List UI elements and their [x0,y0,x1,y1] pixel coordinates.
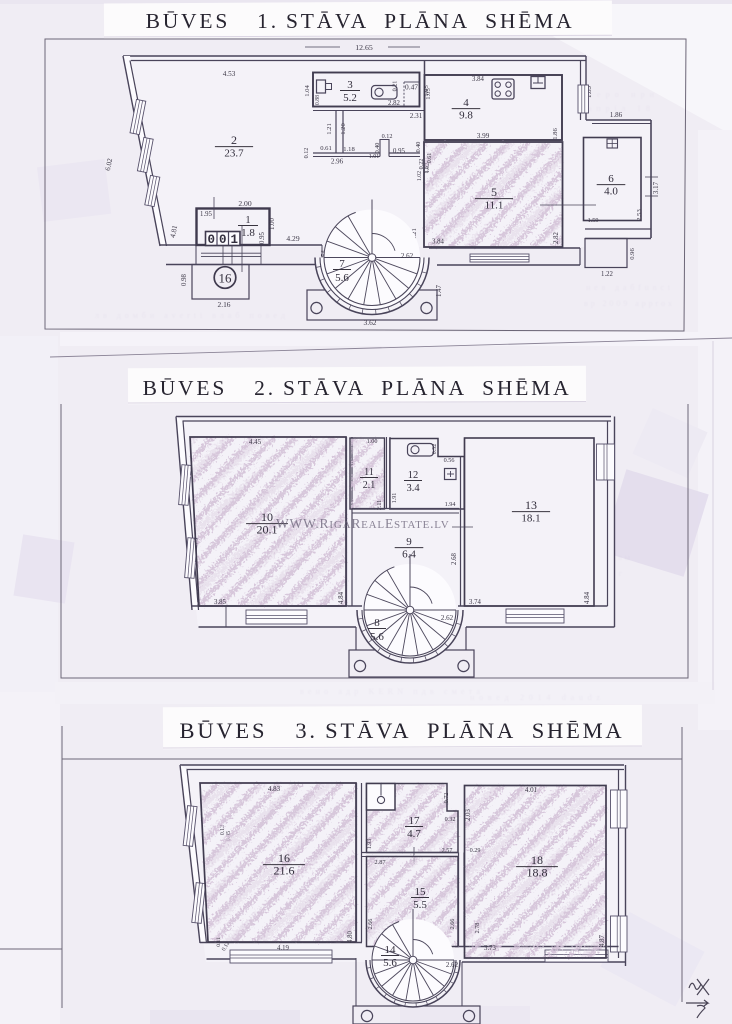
svg-text:1.20: 1.20 [340,123,347,135]
svg-text:5.5: 5.5 [413,899,427,911]
svg-text:14: 14 [385,944,397,956]
svg-text:4.84: 4.84 [337,591,345,604]
svg-text:2.62: 2.62 [446,961,459,969]
svg-text:5.6: 5.6 [335,272,349,284]
svg-text:1.01: 1.01 [369,154,380,160]
svg-text:3.74: 3.74 [469,599,481,606]
svg-text:0.11: 0.11 [216,937,222,947]
svg-text:2.66: 2.66 [367,919,374,930]
svg-text:2.31: 2.31 [410,112,423,120]
svg-text:2.53: 2.53 [636,209,643,221]
svg-text:0.40: 0.40 [415,142,422,153]
svg-text:0.61: 0.61 [427,153,433,164]
svg-text:4: 4 [463,97,469,109]
svg-text:2.82: 2.82 [553,231,560,243]
svg-text:0: 0 [208,233,216,247]
svg-text:17: 17 [409,815,421,827]
svg-text:1.00: 1.00 [367,438,378,445]
svg-text:1.59: 1.59 [588,217,599,224]
svg-text:0.96: 0.96 [629,248,636,260]
svg-text:0.95: 0.95 [393,148,405,155]
svg-text:1.86: 1.86 [552,128,559,140]
svg-text:1.05: 1.05 [423,85,430,97]
svg-text:1.8: 1.8 [241,227,255,239]
svg-text:2.87: 2.87 [374,859,386,866]
svg-text:4.29: 4.29 [286,234,299,243]
svg-text:2.62: 2.62 [441,614,454,622]
svg-text:13: 13 [525,498,537,512]
svg-text:0.88: 0.88 [315,95,321,105]
svg-text:4.53: 4.53 [223,70,236,78]
svg-text:4.19: 4.19 [277,945,289,952]
svg-text:12: 12 [408,470,419,481]
svg-text:0.72: 0.72 [443,793,450,804]
svg-text:0.12: 0.12 [303,148,310,159]
svg-text:6: 6 [608,173,614,185]
svg-text:7: 7 [339,258,345,270]
svg-text:1.00: 1.00 [269,217,276,229]
svg-text:2.00: 2.00 [238,199,251,208]
svg-text:4.45: 4.45 [249,438,262,446]
svg-text:4.83: 4.83 [268,785,281,793]
svg-text:1.93: 1.93 [367,839,373,850]
svg-text:BŪVES 3. STĀVA PLĀNA SHĒMA: BŪVES 3. STĀVA PLĀNA SHĒMA [180,718,625,743]
svg-text:23.7: 23.7 [224,147,244,159]
svg-text:0.40: 0.40 [374,143,381,154]
svg-text:1.02: 1.02 [417,171,423,181]
svg-text:2.16: 2.16 [218,300,231,309]
svg-text:3.84: 3.84 [432,239,444,246]
svg-text:0: 0 [219,233,227,247]
svg-text:2: 2 [231,133,237,147]
svg-text:9.8: 9.8 [459,109,473,121]
svg-text:0.29: 0.29 [470,847,481,854]
svg-text:2.78: 2.78 [474,923,481,934]
svg-text:1.5: 1.5 [424,166,430,173]
svg-text:2.1: 2.1 [363,480,376,491]
svg-text:0.12: 0.12 [382,133,393,140]
svg-text:8: 8 [374,617,380,629]
svg-text:16: 16 [219,270,233,285]
svg-text:0.61: 0.61 [320,145,332,152]
svg-text:21.6: 21.6 [274,863,295,877]
svg-text:1: 1 [245,215,250,226]
svg-text:WWW.RIGAREALESTATE.LV: WWW.RIGAREALESTATE.LV [276,516,450,531]
svg-text:15: 15 [415,886,427,898]
svg-text:3.17: 3.17 [652,181,660,194]
svg-text:2.62: 2.62 [401,252,414,260]
svg-text:5: 5 [491,185,497,199]
svg-text:4.87: 4.87 [599,934,606,946]
svg-text:5.6: 5.6 [383,957,397,969]
svg-text:вено адр KERN пдв смета: вено адр KERN пдв смета [300,687,480,696]
svg-text:2.68: 2.68 [451,552,458,564]
svg-text:0.95: 0.95 [259,231,266,243]
svg-text:0.21: 0.21 [392,81,399,92]
svg-text:2.03: 2.03 [465,808,472,820]
svg-text:12.65: 12.65 [355,43,373,52]
svg-text:5.2: 5.2 [343,92,357,104]
svg-text:11: 11 [364,467,374,478]
svg-text:11.1: 11.1 [485,199,504,211]
svg-text:2.82: 2.82 [388,100,400,107]
svg-text:0.47: 0.47 [405,83,418,92]
svg-text:3: 3 [347,79,353,91]
svg-text:3.73: 3.73 [484,945,496,952]
svg-text:1.91: 1.91 [392,493,398,504]
svg-text:18.8: 18.8 [527,865,548,879]
svg-text:1.95: 1.95 [200,211,212,218]
svg-text:6.4: 6.4 [402,548,416,560]
svg-text:4.84: 4.84 [583,591,591,604]
svg-text:1.94: 1.94 [445,501,456,508]
svg-text:4.0: 4.0 [604,185,618,197]
svg-text:1.86: 1.86 [610,111,623,119]
svg-text:9: 9 [406,536,412,548]
svg-text:3.85: 3.85 [214,599,226,606]
svg-text:2.96: 2.96 [331,158,344,166]
svg-text:18.1: 18.1 [521,512,540,524]
svg-text:BŪVES 1. STĀVA PLĀNA SHĒMA: BŪVES 1. STĀVA PLĀNA SHĒMA [146,9,575,33]
svg-text:0.98: 0.98 [181,273,188,285]
svg-text:3.84: 3.84 [472,76,484,83]
svg-text:1.18: 1.18 [343,146,355,153]
svg-text:1.22: 1.22 [601,271,613,278]
svg-text:3.62: 3.62 [364,318,377,327]
svg-text:1: 1 [230,233,238,247]
svg-text:3.99: 3.99 [477,132,490,140]
svg-text:1.04: 1.04 [304,85,311,97]
svg-text:4.80: 4.80 [347,930,354,942]
svg-text:5.6: 5.6 [370,631,384,643]
svg-text:0.56: 0.56 [444,457,455,464]
svg-text:1.21: 1.21 [326,123,333,135]
svg-text:BŪVES 2. STĀVA PLĀNA SHĒMA: BŪVES 2. STĀVA PLĀNA SHĒMA [143,376,572,400]
svg-text:2.66: 2.66 [449,919,456,930]
svg-text:0.32: 0.32 [445,816,456,823]
svg-text:3.4: 3.4 [406,483,420,494]
svg-text:20.1: 20.1 [257,522,278,536]
svg-text:0.52: 0.52 [432,444,438,455]
svg-text:4.7: 4.7 [407,828,421,840]
svg-text:4.01: 4.01 [525,786,538,794]
